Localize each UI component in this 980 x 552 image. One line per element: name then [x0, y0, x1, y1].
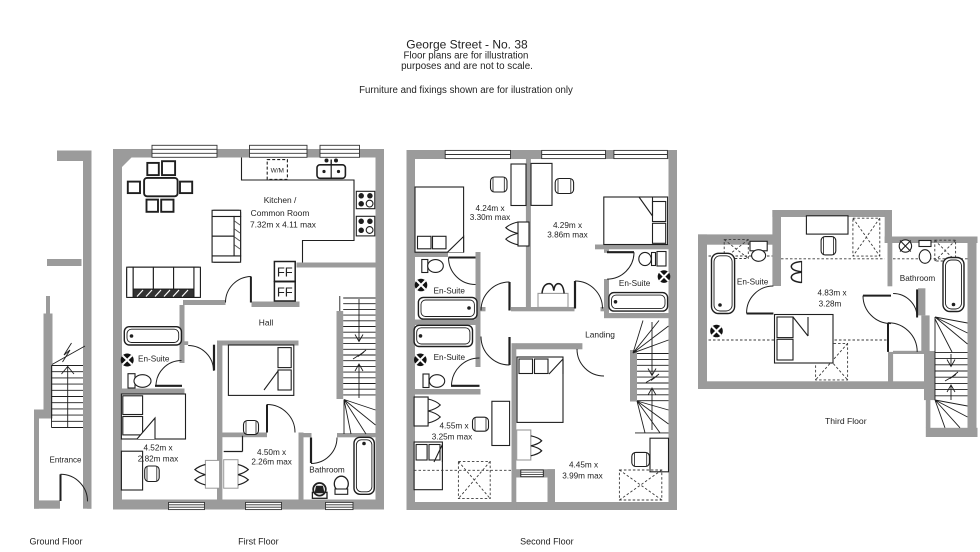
svg-text:3.86m max: 3.86m max — [547, 231, 588, 240]
svg-text:7.32m x 4.11 max: 7.32m x 4.11 max — [250, 220, 317, 230]
svg-text:En-Suite: En-Suite — [434, 287, 466, 296]
svg-text:Landing: Landing — [585, 330, 615, 340]
svg-text:3.30m max: 3.30m max — [470, 213, 511, 222]
svg-text:Kitchen /: Kitchen / — [264, 195, 297, 205]
svg-text:3.25m max: 3.25m max — [432, 433, 473, 442]
svg-text:3.99m max: 3.99m max — [562, 472, 603, 481]
svg-text:3.28m: 3.28m — [819, 300, 842, 309]
svg-text:First Floor: First Floor — [238, 536, 279, 546]
svg-text:Bathroom: Bathroom — [900, 274, 936, 283]
svg-text:Entrance: Entrance — [49, 456, 82, 465]
svg-text:En-Suite: En-Suite — [619, 279, 651, 288]
svg-text:En-Suite: En-Suite — [434, 353, 466, 362]
svg-text:2.82m max: 2.82m max — [138, 455, 179, 464]
svg-text:George Street - No. 38: George Street - No. 38 — [406, 37, 528, 51]
svg-text:Bathroom: Bathroom — [309, 466, 345, 475]
svg-text:4.50m x: 4.50m x — [257, 448, 286, 457]
svg-text:4.45m x: 4.45m x — [569, 461, 598, 470]
svg-text:4.55m x: 4.55m x — [439, 422, 468, 431]
svg-text:Hall: Hall — [259, 318, 274, 328]
svg-text:Second Floor: Second Floor — [520, 536, 574, 546]
svg-text:4.52m x: 4.52m x — [143, 444, 172, 453]
svg-text:2.26m max: 2.26m max — [251, 458, 292, 467]
svg-text:FF: FF — [277, 265, 293, 280]
svg-text:En-Suite: En-Suite — [737, 278, 769, 287]
svg-text:Ground Floor: Ground Floor — [29, 536, 82, 546]
svg-text:4.29m x: 4.29m x — [553, 221, 582, 230]
svg-text:Furniture and fixings shown ar: Furniture and fixings shown are for ilus… — [359, 85, 573, 96]
svg-text:FF: FF — [277, 285, 293, 300]
svg-text:En-Suite: En-Suite — [138, 355, 170, 364]
svg-text:Common Room: Common Room — [251, 208, 310, 218]
svg-text:4.83m x: 4.83m x — [817, 289, 846, 298]
svg-text:purposes and are not to scale.: purposes and are not to scale. — [401, 61, 533, 72]
svg-text:4.24m x: 4.24m x — [475, 204, 504, 213]
svg-text:Floor plans are for illustrati: Floor plans are for illustration — [404, 51, 529, 62]
svg-text:Third Floor: Third Floor — [825, 416, 867, 426]
svg-text:W/M: W/M — [271, 168, 284, 175]
